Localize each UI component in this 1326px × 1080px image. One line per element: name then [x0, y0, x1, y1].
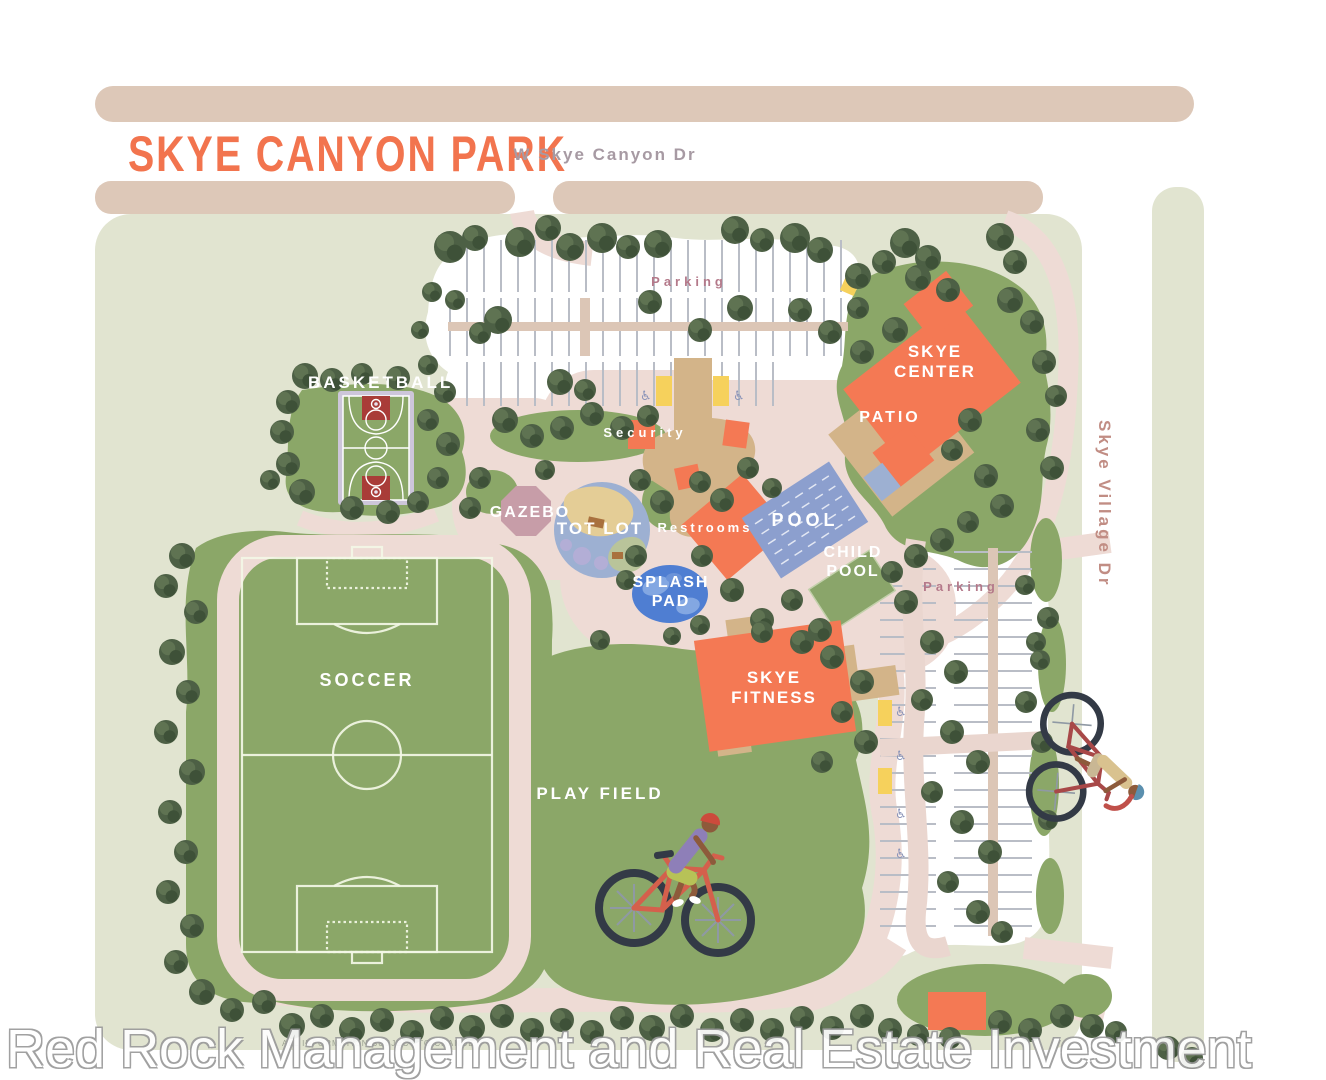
wheelchair-icon: ♿ — [895, 807, 907, 822]
watermark: Red Rock Management and Real Estate Inve… — [6, 1018, 1326, 1080]
splash-pad — [632, 565, 708, 623]
park-title: SKYE CANYON PARK — [128, 126, 567, 183]
park-map: ♿ ♿ ♿ ♿ ♿ ♿ ♿ ♿ — [0, 0, 1326, 1080]
basketball-court — [338, 391, 414, 505]
wheelchair-icon: ♿ — [895, 705, 907, 720]
gazebo-structure — [501, 486, 551, 536]
wheelchair-icon: ♿ — [895, 847, 907, 862]
wheelchair-icon: ♿ — [895, 749, 907, 764]
wheelchair-icon: ♿ — [640, 389, 652, 404]
wheelchair-icon: ♿ — [733, 389, 745, 404]
